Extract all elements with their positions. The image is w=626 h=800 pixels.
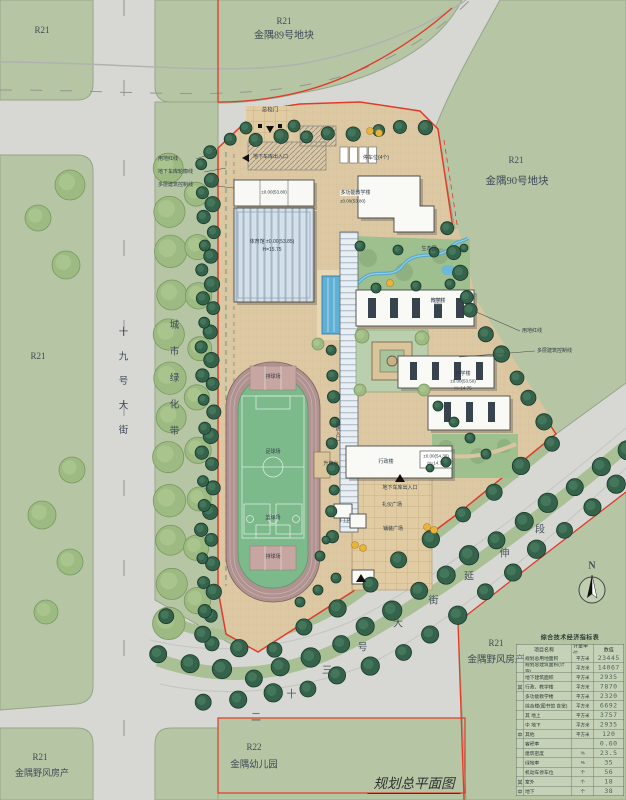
row-unit: 平方米 [572, 711, 594, 720]
row-value: 0.60 [594, 739, 624, 748]
indicators-row: 容积率0.60 [517, 739, 624, 749]
parcel-br-code: R21 [488, 638, 503, 648]
row-unit: 平方米 [572, 730, 594, 739]
row-unit: % [572, 749, 594, 758]
row-name: 规划总用地面积 [524, 654, 572, 663]
row-value: 35 [594, 758, 624, 767]
row-prefix [517, 701, 524, 710]
indicators-header-row: 项目名称 计量单位 数值 [517, 645, 624, 654]
row-value: 3757 [594, 711, 624, 720]
street-23-char: 街 [429, 591, 439, 606]
row-prefix: 中 [517, 787, 524, 796]
header-value: 数值 [594, 645, 624, 654]
indicators-row: 规划总建筑面积(计容)平方米14067 [517, 663, 624, 673]
street-23-char: 伸 [500, 544, 510, 559]
indicators-row: 绿地率%35 [517, 758, 624, 768]
teaching-1-label: 教学楼 [430, 298, 446, 304]
callout-red-line-left: 用地红线 [158, 156, 178, 162]
callout-garage-outline: 地下车库轮廓线 [158, 169, 193, 175]
parcel-bl-code: R21 [32, 752, 47, 762]
row-name: 机动车停车位 [524, 768, 572, 777]
plaza-2-label: 铺装广场 [383, 526, 403, 532]
row-name: 行政、教学楼 [524, 682, 572, 691]
row-name: 容积率 [524, 739, 572, 748]
street-19-label: 十九号大街 [116, 327, 127, 450]
parcel-bl-name: 金隅野风房产 [15, 768, 69, 778]
volleyball-bottom-label: 排球场 [266, 554, 281, 560]
parcel-89-code: R21 [276, 16, 291, 26]
teaching-2-label: 教学楼 [456, 371, 471, 377]
row-value: 38 [594, 787, 624, 796]
callout-red-line-right: 用地红线 [522, 328, 542, 334]
row-prefix [517, 758, 524, 767]
indicators-row: 建筑密度%23.5 [517, 748, 624, 758]
row-value: 2935 [594, 673, 624, 682]
indicators-table-title: 综合技术经济指标表 [516, 633, 624, 642]
row-unit: 个 [572, 768, 594, 777]
garage-entrance-label: 地下车库出入口 [253, 154, 288, 160]
volleyball-top-label: 排球场 [266, 374, 281, 380]
header-item: 项目名称 [517, 645, 572, 654]
green-belt-label: 城市绿化带 [167, 320, 178, 453]
row-name: 建筑密度 [524, 749, 572, 758]
street-23-char: 号 [358, 638, 368, 653]
row-unit: 平方米 [572, 682, 594, 691]
eco-garden-label: 生态园 [422, 246, 437, 252]
callout-control-line-right: 多层建筑控制线 [537, 348, 572, 354]
gym-height: H=15.75 [262, 247, 281, 253]
row-prefix [517, 768, 524, 777]
indicators-row: 多功能教学楼平方米2320 [517, 691, 624, 701]
row-prefix [517, 692, 524, 701]
parking-label: 停车位(4个) [363, 155, 389, 161]
row-value: 2320 [594, 692, 624, 701]
garage-entrance-2-label: 地下车库出入口 [383, 485, 418, 491]
parcel-r22-name: 金隅幼儿园 [230, 761, 278, 772]
indicators-row: 中 地下平方米2935 [517, 720, 624, 730]
callout-control-line-left: 多层建筑控制线 [158, 182, 193, 188]
street-23-char: 三 [322, 662, 332, 677]
soccer-field-label: 足球场 [266, 449, 281, 455]
row-unit: 平方米 [572, 692, 594, 701]
row-name: 室外 [524, 777, 572, 786]
indicators-row: 其行政、教学楼平方米7870 [517, 682, 624, 692]
street-23-char: 延 [464, 568, 474, 583]
main-gate-label: 总校门 [262, 107, 279, 113]
indicators-row: 其室外个18 [517, 777, 624, 787]
row-prefix: 其 [517, 682, 524, 691]
row-prefix: 其 [517, 777, 524, 786]
site-plan-page: R21 R21 金隅89号地块 R21 金隅90号地块 R21 R21 金隅野风… [0, 0, 626, 800]
row-value: 18 [594, 777, 624, 786]
row-name: 中 地下 [524, 720, 572, 729]
indicators-row: 中其他平方米120 [517, 729, 624, 739]
row-unit: 平方米 [572, 673, 594, 682]
row-prefix [517, 673, 524, 682]
row-unit: 平方米 [572, 654, 594, 663]
multi-teaching-elevation: ±0.00(53.80) [340, 198, 365, 203]
row-unit: 平方米 [572, 720, 594, 729]
parcel-ml-code: R21 [30, 351, 45, 361]
multi-teaching-label: 多功能教学楼 [340, 190, 371, 196]
row-name: 绿地率 [524, 758, 572, 767]
row-value: 120 [594, 730, 624, 739]
row-unit [572, 739, 594, 748]
row-prefix [517, 654, 524, 663]
row-value: 23445 [594, 654, 624, 663]
admin-elevation: ±0.00(54.30) [423, 453, 448, 458]
row-prefix [517, 663, 524, 672]
teaching-2-elevation: ±0.00(53.50) [450, 378, 475, 383]
basketball-label: 篮球场 [266, 515, 281, 521]
parcel-r22-code: R22 [246, 742, 261, 752]
row-unit: % [572, 758, 594, 767]
indicators-row: 机动车停车位个56 [517, 767, 624, 777]
indicators-row: 中地下个38 [517, 786, 624, 796]
row-name: 其他 [524, 730, 572, 739]
fire-entrance-label: 消防入口 [334, 421, 340, 441]
canteen-elevation: ±0.00(53.80) [261, 189, 286, 194]
indicators-row: 规划总用地面积平方米23445 [517, 654, 624, 663]
row-value: 56 [594, 768, 624, 777]
admin-height: H=14.75 [427, 460, 444, 465]
row-value: 14067 [594, 663, 624, 672]
indicators-row: 地下建筑面积平方米2935 [517, 672, 624, 682]
drawing-title: 规划总平面图 [368, 772, 461, 794]
row-prefix [517, 749, 524, 758]
row-prefix [517, 711, 524, 720]
row-unit: 个 [572, 787, 594, 796]
admin-label: 行政楼 [379, 459, 394, 465]
row-prefix [517, 739, 524, 748]
flag-stand-label: 升旗台 [324, 461, 339, 467]
teaching-2-height: H=14.75 [454, 385, 471, 390]
row-name: 综合楼(图书馆 食堂) [524, 701, 572, 710]
compass-n-label: N [588, 560, 595, 572]
row-name: 多功能教学楼 [524, 692, 572, 701]
row-name: 地下建筑面积 [524, 673, 572, 682]
row-value: 7870 [594, 682, 624, 691]
row-prefix [517, 720, 524, 729]
parcel-89-name: 金隅89号地块 [254, 30, 314, 42]
row-unit: 平方米 [572, 701, 594, 710]
indicators-row: 其 地上平方米3757 [517, 710, 624, 720]
row-name: 地下 [524, 787, 572, 796]
row-name: 规划总建筑面积(计容) [524, 663, 572, 672]
street-23-char: 十 [287, 685, 297, 700]
row-prefix: 中 [517, 730, 524, 739]
row-value: 23.5 [594, 749, 624, 758]
gym-label: 体育馆 ±0.00(53.85) [250, 239, 295, 245]
row-name: 其 地上 [524, 711, 572, 720]
row-value: 2935 [594, 720, 624, 729]
row-unit: 个 [572, 777, 594, 786]
row-unit: 平方米 [572, 663, 594, 672]
parcel-90-code: R21 [508, 155, 523, 165]
parcel-90-name: 金隅90号地块 [486, 176, 549, 188]
street-23-char: 二 [251, 709, 261, 724]
indicators-row: 综合楼(图书馆 食堂)平方米6692 [517, 701, 624, 711]
guard-house-label: 门卫 [340, 518, 350, 524]
header-unit: 计量单位 [572, 645, 594, 654]
plaza-1-label: 礼仪广场 [382, 502, 402, 508]
parcel-tl-code: R21 [34, 25, 49, 35]
indicators-table: 综合技术经济指标表 项目名称 计量单位 数值 规划总用地面积平方米23445规划… [516, 633, 624, 796]
street-23-char: 大 [393, 615, 403, 630]
row-value: 6692 [594, 701, 624, 710]
athletic-track [226, 362, 320, 602]
street-23-char: 段 [535, 521, 545, 536]
